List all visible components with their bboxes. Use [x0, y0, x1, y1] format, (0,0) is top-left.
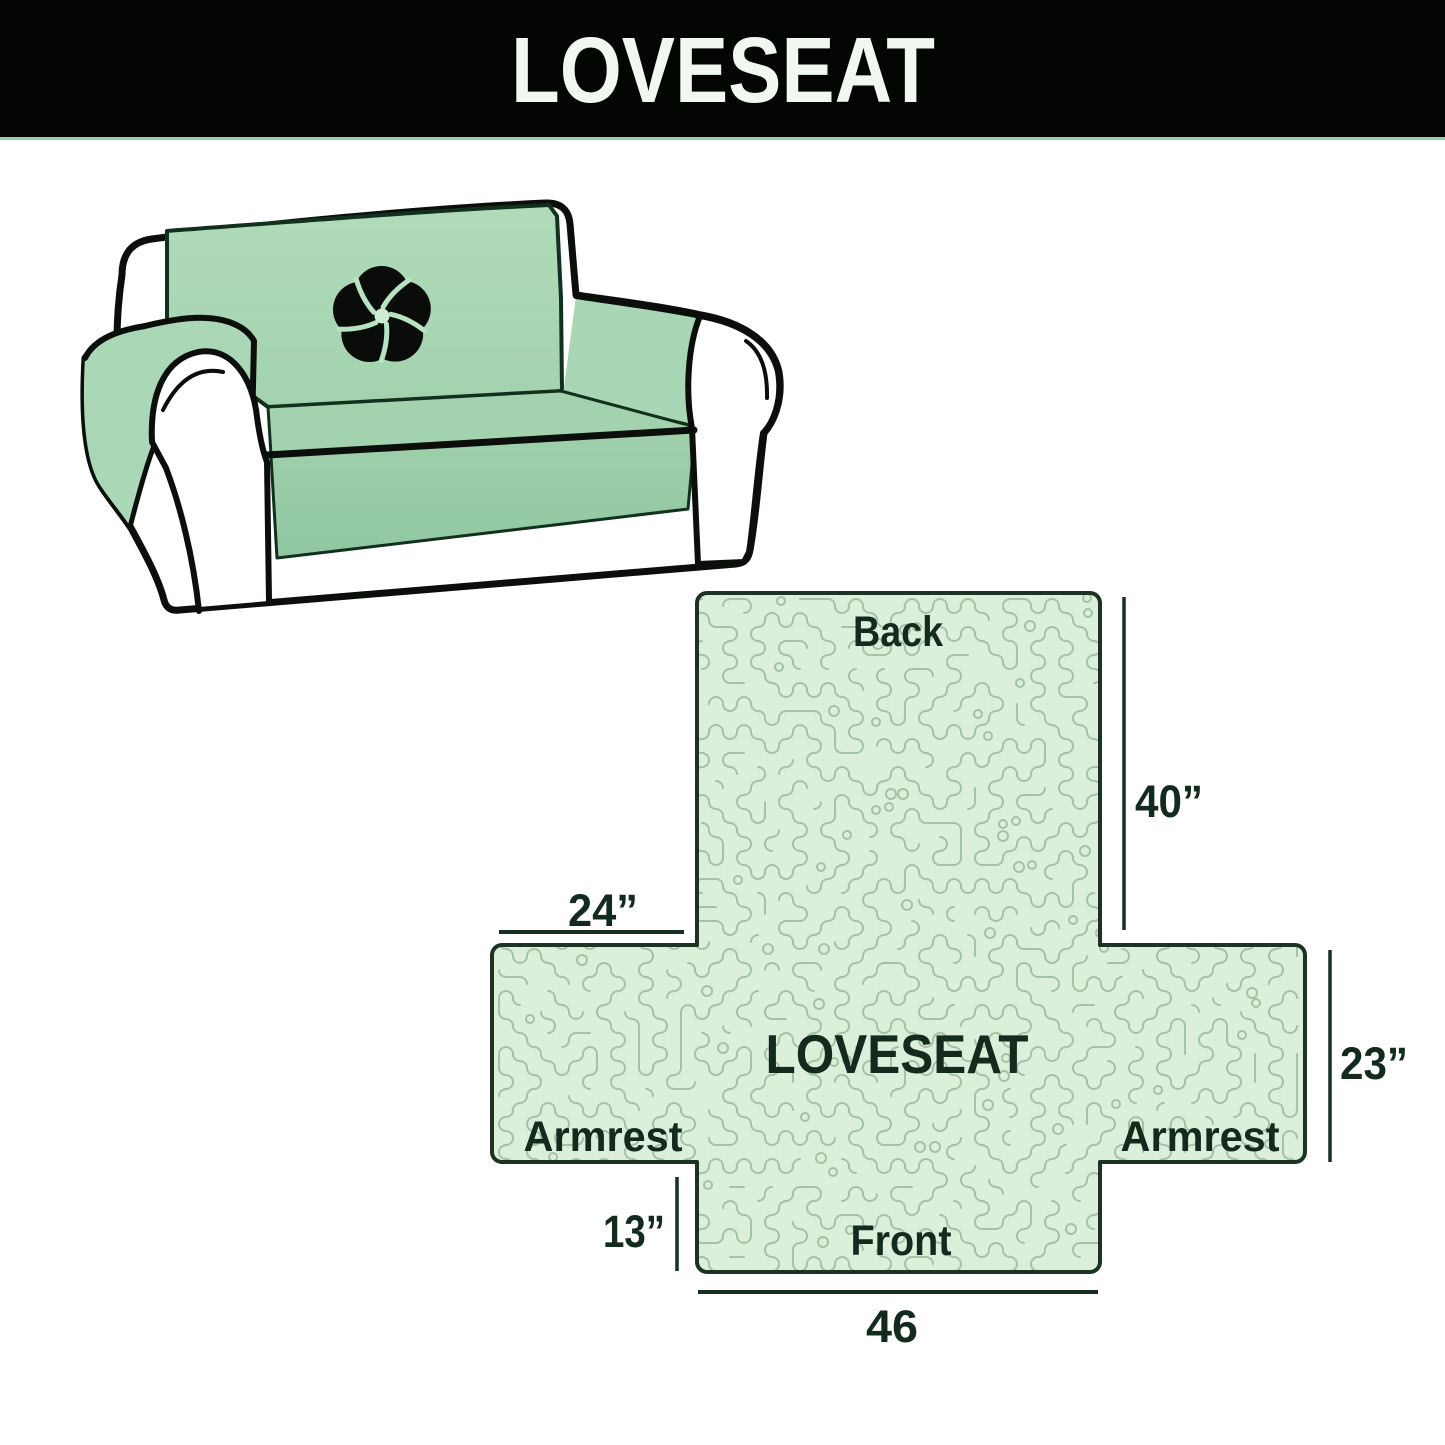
svg-text:Back: Back [853, 608, 943, 656]
svg-text:Armrest: Armrest [1121, 1113, 1280, 1161]
svg-text:46: 46 [866, 1301, 918, 1352]
svg-text:Armrest: Armrest [524, 1113, 683, 1161]
svg-text:13”: 13” [603, 1206, 665, 1257]
svg-text:23”: 23” [1340, 1038, 1408, 1089]
svg-text:24”: 24” [568, 885, 638, 936]
svg-text:LOVESEAT: LOVESEAT [766, 1023, 1029, 1085]
svg-text:Front: Front [851, 1217, 952, 1265]
svg-text:LOVESEAT: LOVESEAT [511, 18, 935, 122]
svg-text:40”: 40” [1135, 776, 1203, 827]
